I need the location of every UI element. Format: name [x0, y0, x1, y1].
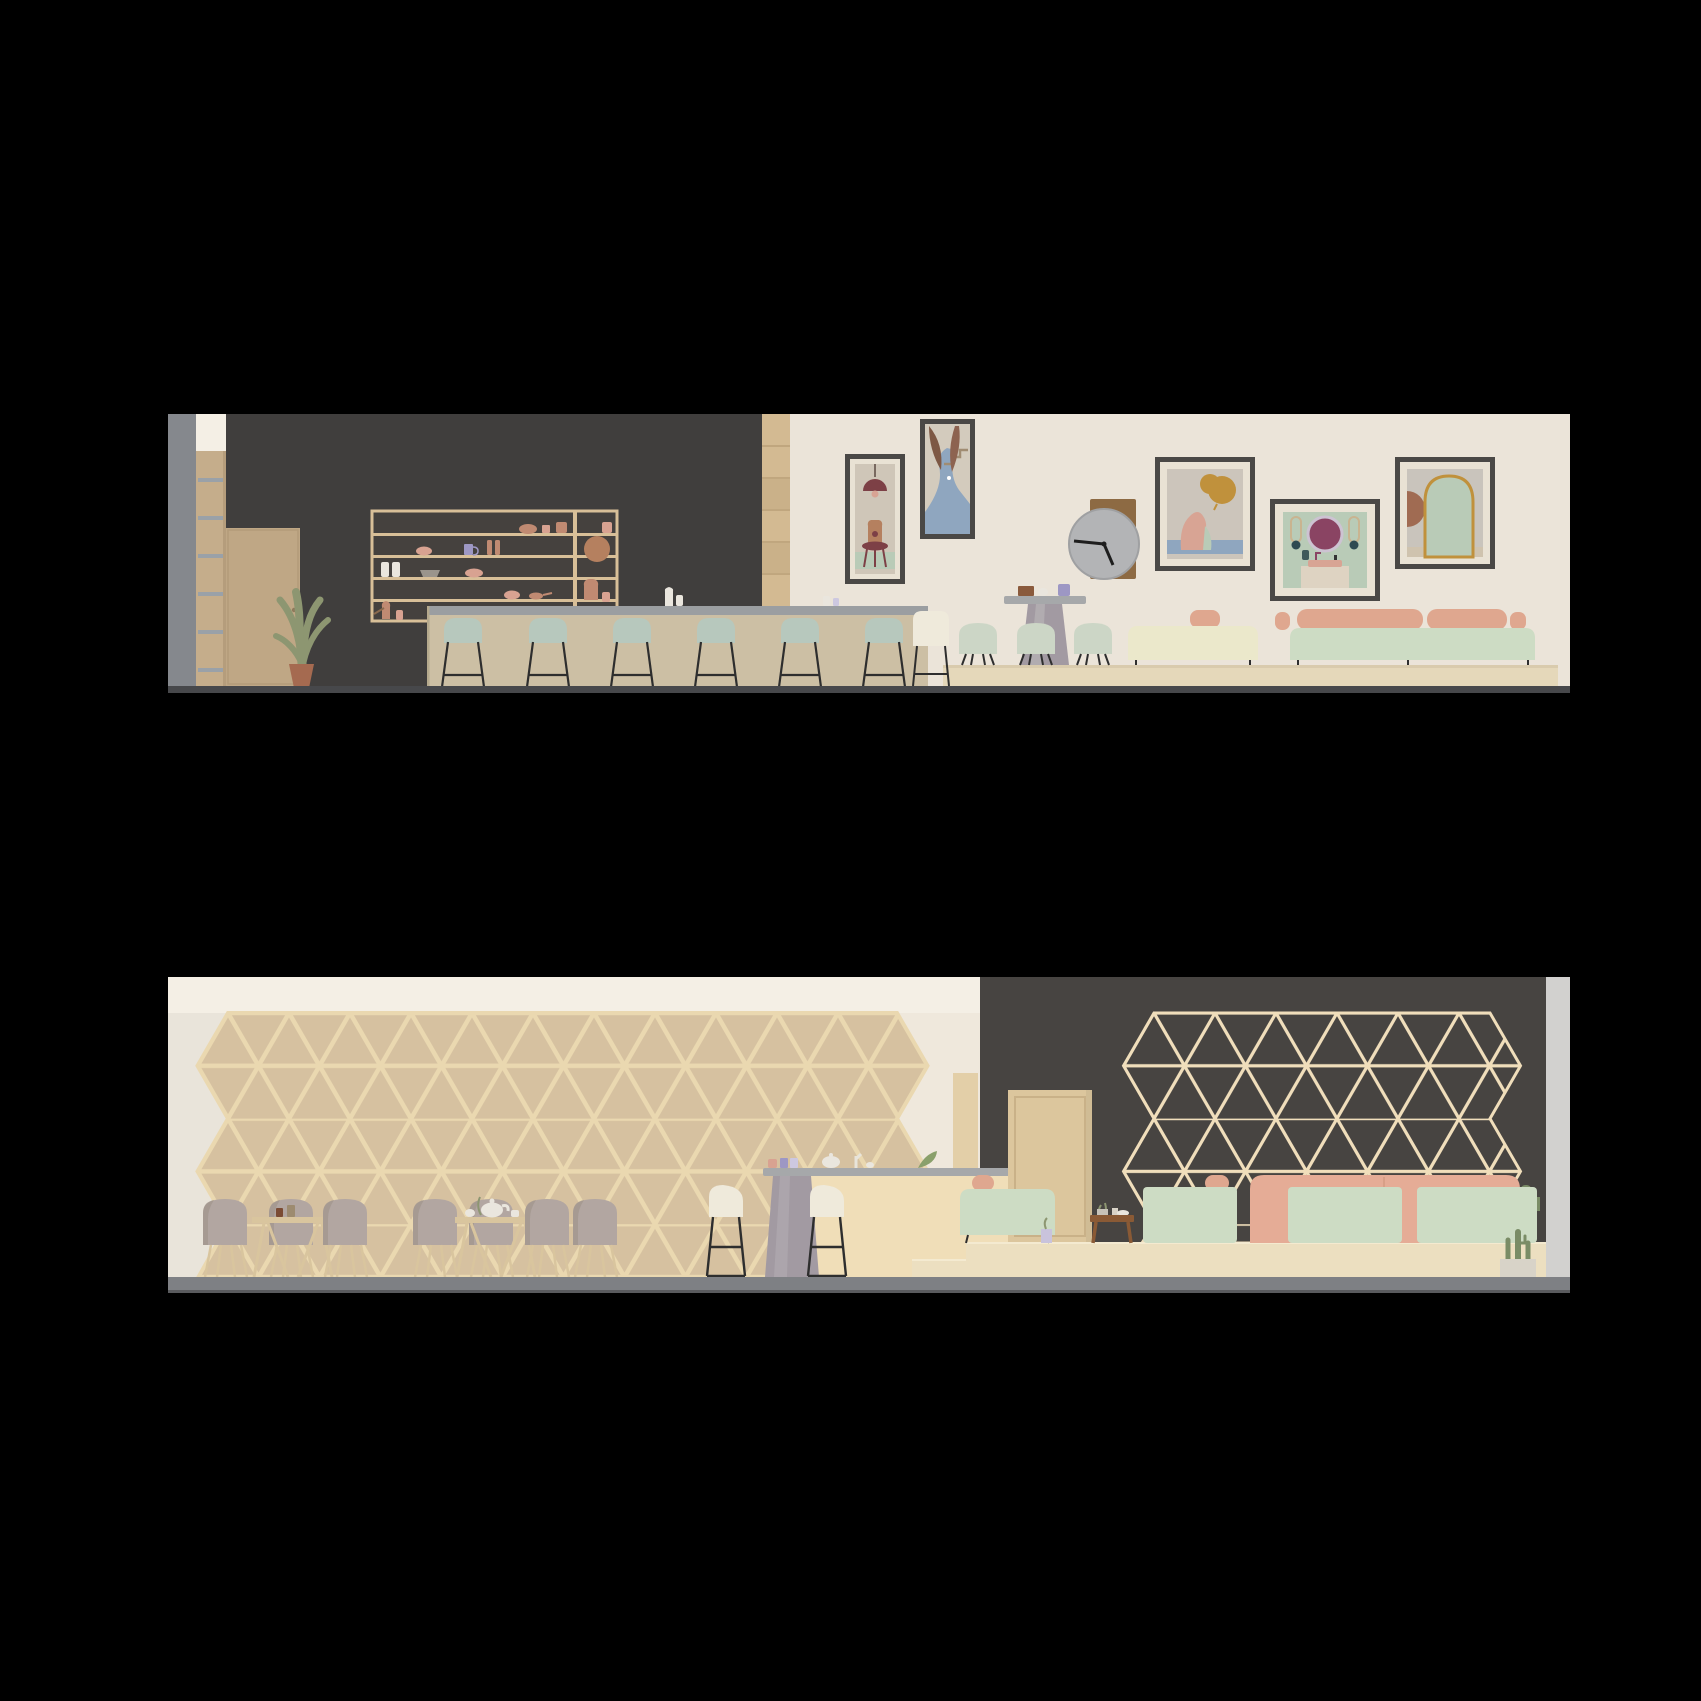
banquette-back-2	[1288, 1187, 1402, 1243]
framed-artwork-vanity-mirror	[1270, 499, 1380, 601]
mint-lounge-bench	[960, 1189, 1055, 1243]
crate-stack	[762, 414, 790, 606]
wall-shelf-unit	[372, 511, 617, 621]
framed-artwork-pendant-lamp	[845, 454, 905, 584]
box-on-table	[1018, 586, 1034, 596]
counter-slab	[763, 1168, 1037, 1176]
raised-platform	[912, 1243, 1546, 1277]
sofa-back-cushions	[1275, 609, 1526, 630]
elevation-panel-lower	[168, 977, 1570, 1293]
lounge-cushion-pink	[972, 1175, 994, 1191]
floor-line	[168, 686, 1570, 693]
banquette-back-1	[1143, 1187, 1237, 1243]
floor-edge-line	[168, 1290, 1570, 1293]
wall-panel-tan	[953, 1073, 978, 1168]
cup-on-table	[1038, 588, 1048, 596]
floor-strip	[168, 1277, 1570, 1290]
framed-artwork-river	[920, 419, 975, 539]
canvas-background	[0, 0, 1701, 1701]
bench-cushion-pink	[1190, 610, 1220, 628]
bar-counter	[427, 606, 928, 686]
framed-artwork-balloon-figure	[1155, 457, 1255, 571]
ladder-shelf-column	[196, 414, 226, 686]
edge-pier	[1546, 977, 1570, 1290]
cream-bench	[1128, 626, 1258, 665]
mug-on-table	[1058, 584, 1070, 596]
counter-pedestal	[765, 1176, 819, 1277]
seating-platform	[943, 665, 1558, 686]
framed-artwork-arch	[1395, 457, 1495, 569]
counter-top-slab	[427, 606, 928, 615]
elevation-panel-upper	[168, 414, 1570, 693]
mint-sofa	[1290, 628, 1535, 665]
concrete-pilaster	[168, 414, 196, 686]
